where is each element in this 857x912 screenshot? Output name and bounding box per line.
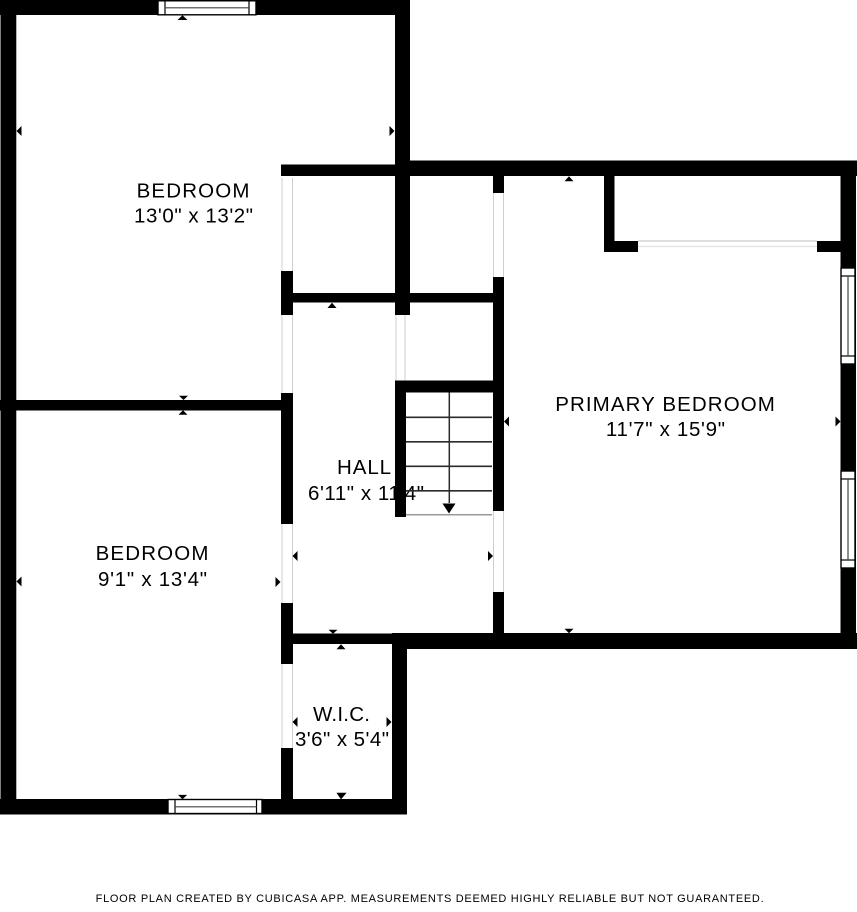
svg-text:BEDROOM: BEDROOM xyxy=(96,542,210,565)
svg-text:6'11" x 11'4": 6'11" x 11'4" xyxy=(308,482,425,505)
svg-text:9'1" x 13'4": 9'1" x 13'4" xyxy=(98,568,208,591)
svg-text:PRIMARY BEDROOM: PRIMARY BEDROOM xyxy=(555,393,776,416)
svg-text:3'6" x 5'4": 3'6" x 5'4" xyxy=(295,728,389,751)
svg-text:FLOOR PLAN CREATED BY CUBICASA: FLOOR PLAN CREATED BY CUBICASA APP. MEAS… xyxy=(96,893,765,905)
svg-text:HALL: HALL xyxy=(337,456,392,479)
svg-text:W.I.C.: W.I.C. xyxy=(313,703,370,726)
svg-text:11'7" x 15'9": 11'7" x 15'9" xyxy=(606,418,726,441)
svg-text:BEDROOM: BEDROOM xyxy=(137,180,251,203)
svg-text:13'0" x 13'2": 13'0" x 13'2" xyxy=(134,205,254,228)
